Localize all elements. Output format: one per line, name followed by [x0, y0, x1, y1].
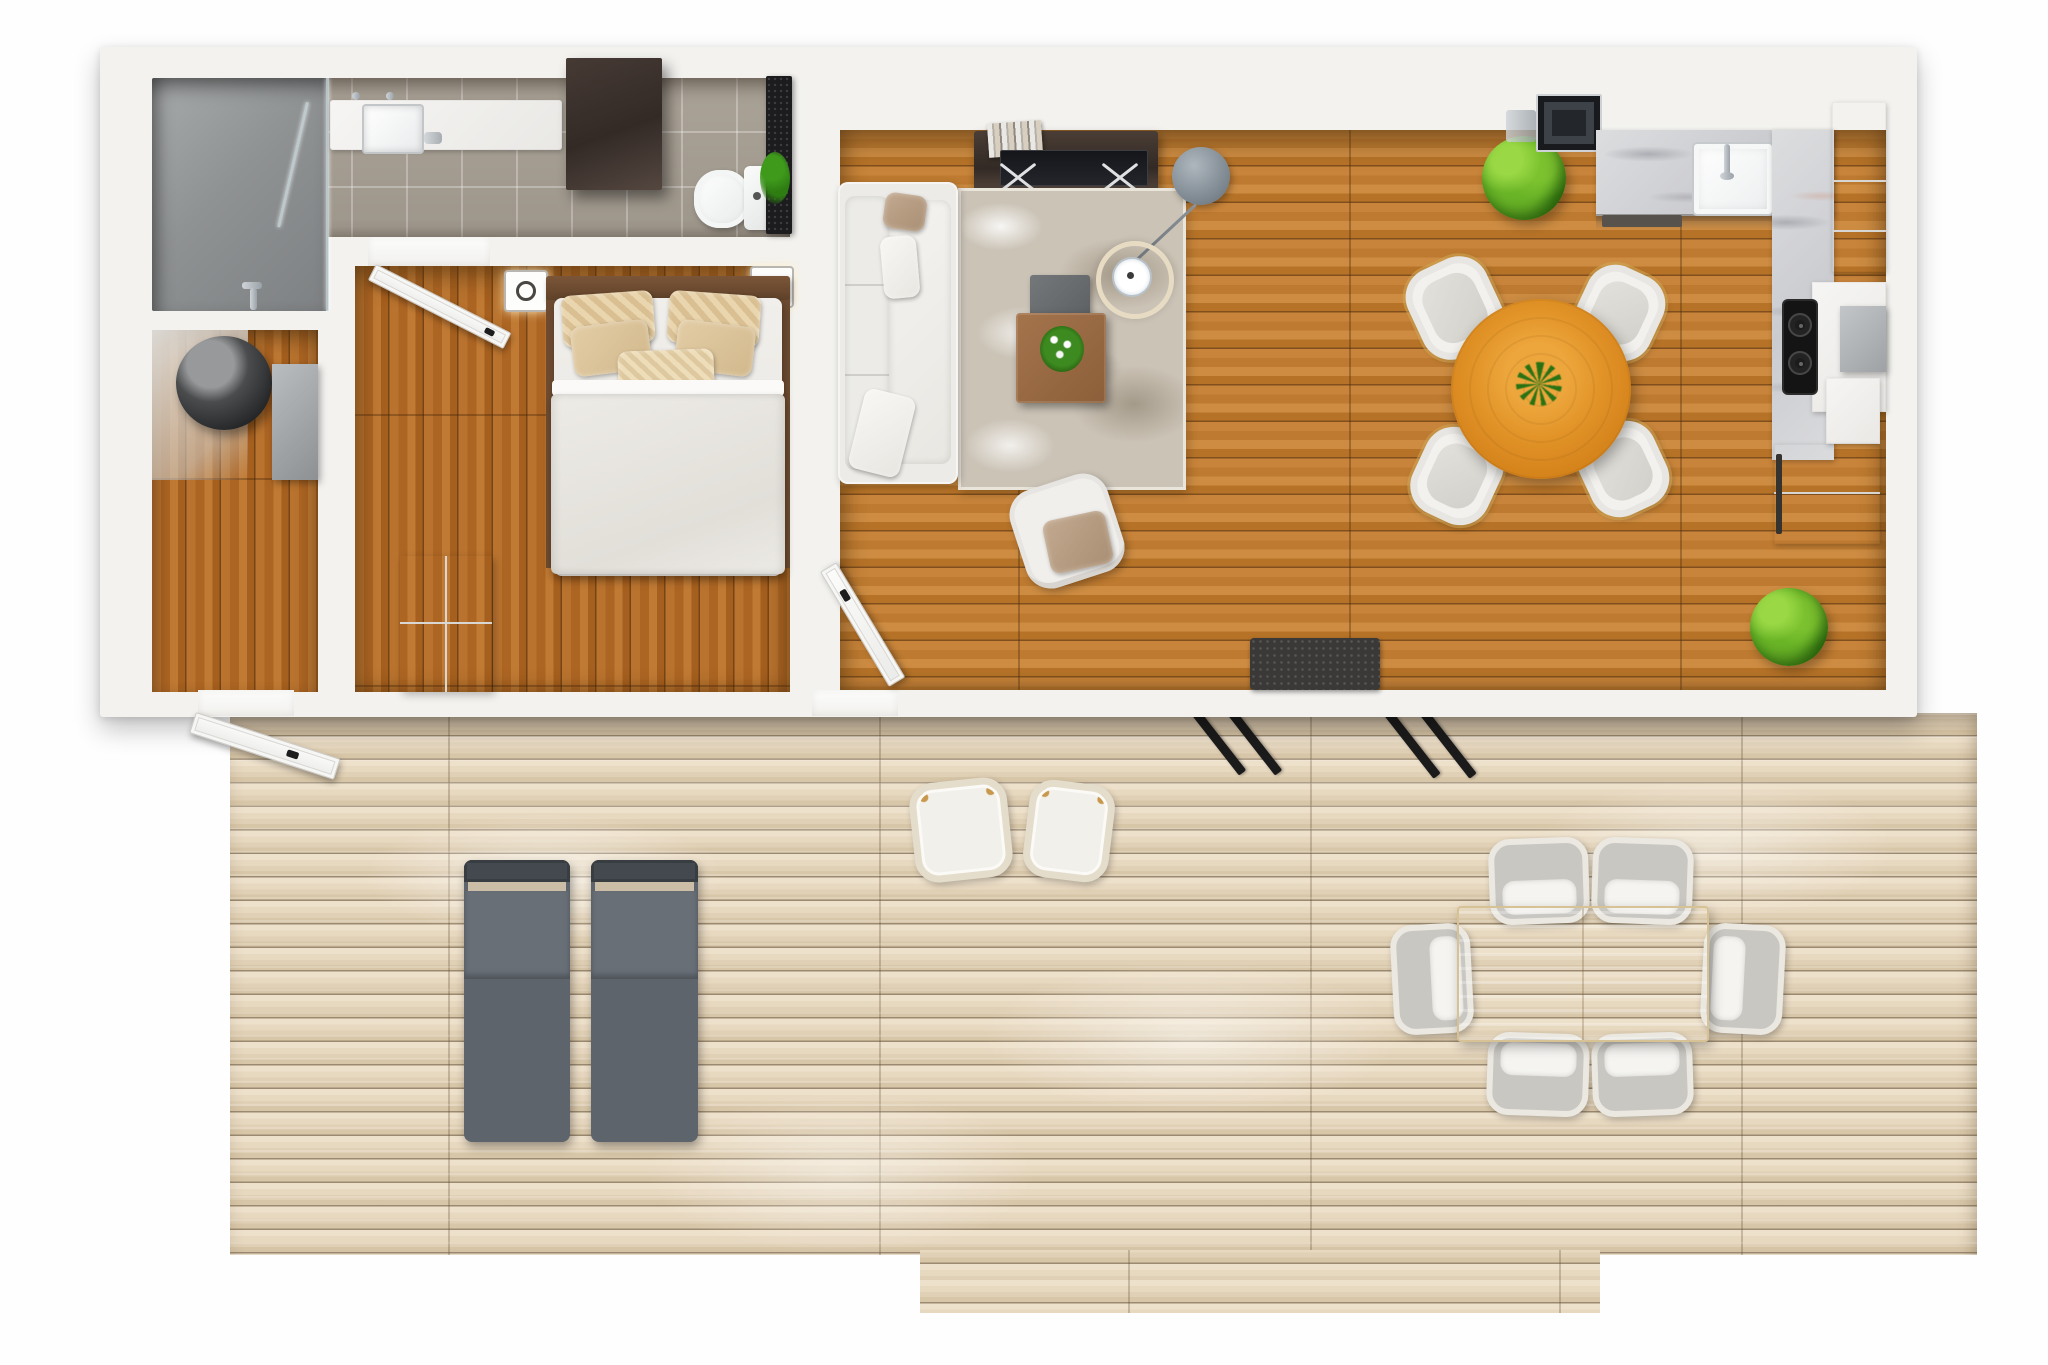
- rope-chair: [907, 775, 1015, 885]
- shower-glass-screen: [326, 78, 329, 311]
- door-handle-icon: [839, 588, 851, 602]
- armchair-throw: [1041, 509, 1115, 575]
- outdoor-chair: [1699, 922, 1787, 1036]
- soap-dish-icon: [424, 132, 442, 144]
- deck-door-opening: [812, 690, 898, 716]
- sofa-pillow: [882, 191, 929, 232]
- cooktop: [1784, 301, 1816, 393]
- vanity-faucet-icon: [386, 92, 394, 100]
- under-counter-vent: [1602, 215, 1682, 227]
- table-centerpiece-icon: [1516, 362, 1562, 406]
- outdoor-chair: [1591, 1031, 1695, 1117]
- cabinet-handle-icon: [1776, 454, 1782, 534]
- deck-lower-extension: [920, 1250, 1600, 1313]
- arc-lamp-bulb-icon: [1127, 272, 1134, 279]
- burner-icon: [1788, 313, 1812, 337]
- partition-plant-icon: [760, 152, 790, 204]
- shower-handle-icon: [250, 288, 257, 310]
- lounger-headrest: [464, 860, 570, 882]
- lounger-backrest: [591, 891, 698, 979]
- rope-chair: [1020, 777, 1117, 885]
- orchid-icon: [1040, 326, 1084, 372]
- floorplan-render: [0, 0, 2048, 1365]
- sun-lounger: [464, 860, 570, 1142]
- lounger-frame-gap: [595, 882, 694, 891]
- bathroom-wall-cabinet: [566, 58, 662, 190]
- stone-block: [1840, 306, 1886, 372]
- sun-lounger: [591, 860, 698, 1142]
- toilet-bowl: [694, 170, 750, 228]
- outdoor-dining-table: [1457, 906, 1709, 1042]
- toilet-flush-button-icon: [753, 192, 761, 200]
- sofa-pillow: [879, 235, 920, 300]
- vanity-faucet-icon: [352, 92, 360, 100]
- bedroom-door-opening: [368, 237, 490, 266]
- kitchen-faucet-icon: [1720, 172, 1734, 180]
- wall-light-icon: [504, 270, 548, 312]
- range-hood-panel: [1536, 94, 1602, 152]
- kitchen-sink: [1692, 142, 1774, 216]
- hood-shelf: [1506, 110, 1536, 142]
- kitchen-lower-cabinet: [1774, 444, 1880, 544]
- shower-floor: [152, 78, 328, 311]
- burner-icon: [1788, 351, 1812, 375]
- door-handle-icon: [286, 749, 300, 759]
- coffee-table-gray: [1030, 275, 1090, 317]
- lounger-frame-gap: [468, 882, 566, 891]
- vanity-sink: [362, 104, 424, 154]
- utility-cabinet: [272, 364, 318, 480]
- doormat: [1250, 638, 1380, 690]
- arc-lamp-base: [1172, 147, 1230, 205]
- outdoor-chair: [1486, 1031, 1591, 1118]
- kitchen-tall-cabinet: [1832, 102, 1886, 272]
- lounger-headrest: [591, 860, 698, 882]
- wardrobe: [400, 556, 492, 692]
- potted-plant: [1750, 588, 1828, 666]
- water-heater: [176, 336, 272, 430]
- bed-duvet: [551, 394, 785, 574]
- entry-door-opening: [198, 690, 294, 716]
- lounger-backrest: [464, 891, 570, 979]
- door-handle-icon: [484, 327, 496, 337]
- kitchen-lower-cabinet-small: [1826, 378, 1880, 444]
